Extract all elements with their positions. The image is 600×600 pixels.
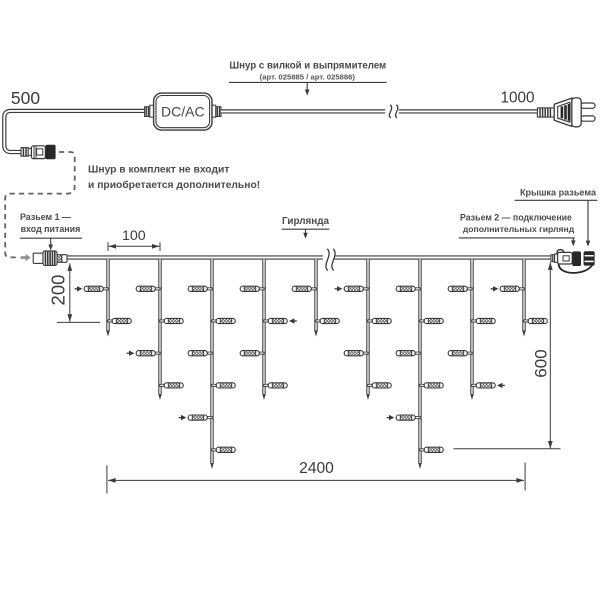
svg-text:Крышка разьема: Крышка разьема — [520, 187, 597, 197]
svg-text:и приобретается дополнительно!: и приобретается дополнительно! — [88, 179, 260, 191]
svg-text:Разьем 1 —: Разьем 1 — — [20, 212, 71, 222]
svg-text:DC/AC: DC/AC — [161, 104, 205, 120]
svg-text:Разьем 2 — подключение: Разьем 2 — подключение — [460, 213, 572, 223]
svg-text:(арт. 025885 / арт. 025886): (арт. 025885 / арт. 025886) — [260, 72, 356, 81]
svg-text:1000: 1000 — [500, 89, 534, 106]
svg-text:Шнур в комплект не входит: Шнур в комплект не входит — [88, 165, 229, 176]
svg-text:200: 200 — [48, 275, 69, 306]
svg-text:500: 500 — [11, 88, 40, 108]
svg-text:2400: 2400 — [299, 460, 334, 477]
svg-text:Гирлянда: Гирлянда — [282, 216, 329, 227]
svg-text:100: 100 — [122, 228, 146, 244]
svg-text:Шнур с вилкой и выпрямителем: Шнур с вилкой и выпрямителем — [229, 61, 386, 72]
svg-text:600: 600 — [531, 349, 550, 377]
svg-text:вход питания: вход питания — [21, 224, 81, 234]
svg-text:дополнительных гирлянд: дополнительных гирлянд — [463, 224, 575, 234]
